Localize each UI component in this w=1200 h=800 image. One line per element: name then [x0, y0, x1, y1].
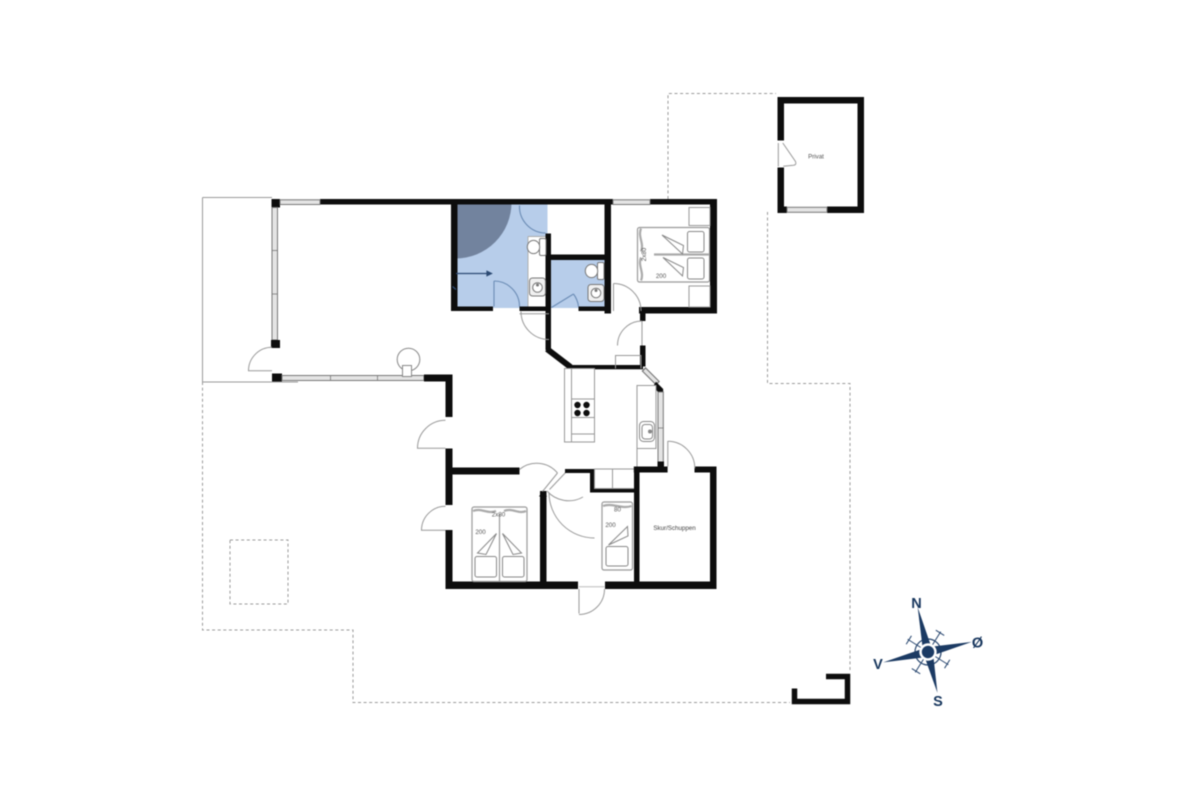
- svg-text:200: 200: [656, 273, 667, 280]
- svg-text:S: S: [933, 694, 943, 710]
- svg-text:N: N: [911, 596, 921, 612]
- svg-text:200: 200: [605, 522, 616, 529]
- svg-text:Skur/Schuppen: Skur/Schuppen: [653, 525, 696, 532]
- svg-text:2x80: 2x80: [641, 247, 648, 261]
- svg-text:200: 200: [475, 529, 486, 536]
- svg-text:2x80: 2x80: [492, 512, 506, 519]
- svg-text:Privat: Privat: [808, 154, 824, 161]
- svg-text:Ø: Ø: [972, 635, 983, 651]
- svg-text:80: 80: [614, 507, 621, 514]
- svg-text:V: V: [873, 657, 883, 673]
